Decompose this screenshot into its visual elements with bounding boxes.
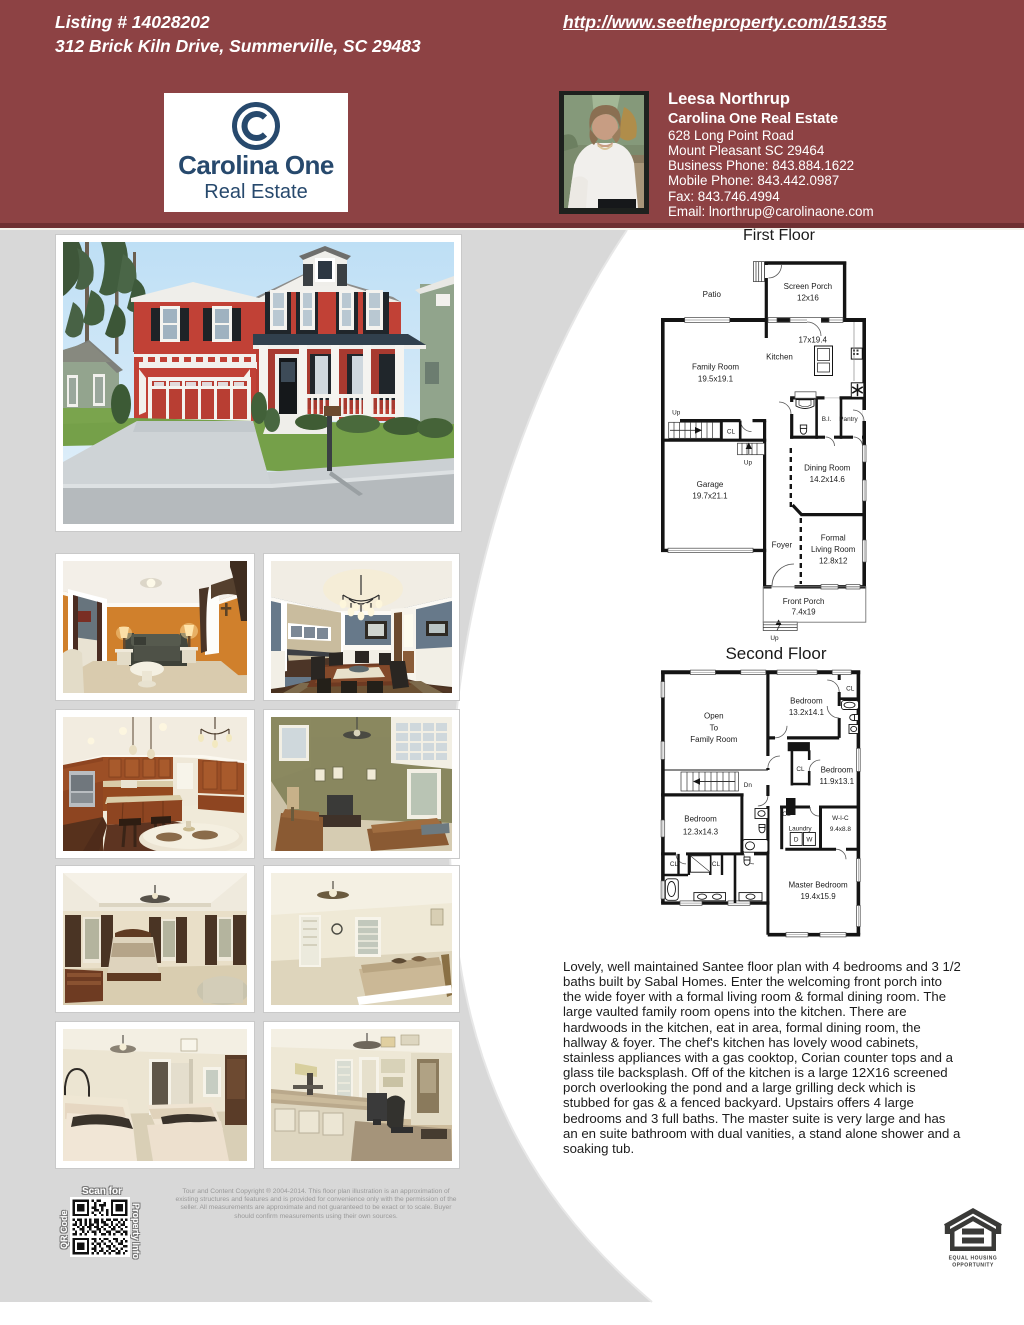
svg-text:Kitchen: Kitchen [766,353,793,362]
svg-text:W-I-C: W-I-C [832,815,849,822]
svg-text:Family Room: Family Room [692,363,739,372]
svg-text:Formal: Formal [821,533,846,542]
svg-text:Open: Open [704,712,724,721]
svg-text:Laundry: Laundry [789,825,813,832]
svg-text:Up: Up [770,635,779,642]
svg-text:7.4x19: 7.4x19 [792,608,817,617]
svg-text:19.4x15.9: 19.4x15.9 [801,892,837,901]
svg-text:CL: CL [727,429,736,436]
svg-text:Master Bedroom: Master Bedroom [789,880,848,889]
svg-text:B.I.: B.I. [822,416,832,423]
svg-text:CL: CL [712,861,721,868]
svg-text:9.4x8.8: 9.4x8.8 [830,826,851,833]
svg-text:Screen Porch: Screen Porch [784,282,832,291]
svg-text:Up: Up [744,460,753,467]
svg-text:Dn: Dn [744,782,753,789]
svg-text:CL: CL [782,811,791,818]
svg-text:CL: CL [846,686,855,693]
svg-text:CL: CL [796,766,805,773]
svg-text:Garage: Garage [697,480,724,489]
svg-text:D: D [794,837,799,844]
svg-text:To: To [710,723,719,732]
svg-text:W: W [806,837,813,844]
svg-text:Bedroom: Bedroom [821,766,854,775]
svg-text:19.7x21.1: 19.7x21.1 [692,492,728,501]
svg-text:Foyer: Foyer [772,541,793,550]
svg-text:17x19.4: 17x19.4 [798,336,827,345]
svg-text:Bedroom: Bedroom [684,815,717,824]
svg-text:14.2x14.6: 14.2x14.6 [810,475,846,484]
svg-text:11.9x13.1: 11.9x13.1 [820,777,855,786]
svg-text:12.3x14.3: 12.3x14.3 [683,828,719,837]
svg-text:Dining Room: Dining Room [804,463,851,472]
svg-text:Living Room: Living Room [811,545,856,554]
svg-text:Patio: Patio [703,290,722,299]
svg-text:13.2x14.1: 13.2x14.1 [789,708,825,717]
svg-text:12x16: 12x16 [797,294,819,303]
svg-text:19.5x19.1: 19.5x19.1 [698,374,734,383]
svg-text:CL: CL [670,861,679,868]
svg-text:Family Room: Family Room [690,735,737,744]
svg-text:12.8x12: 12.8x12 [819,557,848,566]
svg-text:Up: Up [672,410,681,417]
svg-text:Bedroom: Bedroom [790,696,823,705]
svg-text:EQUAL HOUSING: EQUAL HOUSING [949,1256,998,1262]
svg-text:OPPORTUNITY: OPPORTUNITY [952,1263,994,1269]
svg-text:Front Porch: Front Porch [783,597,825,606]
svg-text:Pantry: Pantry [839,416,858,423]
